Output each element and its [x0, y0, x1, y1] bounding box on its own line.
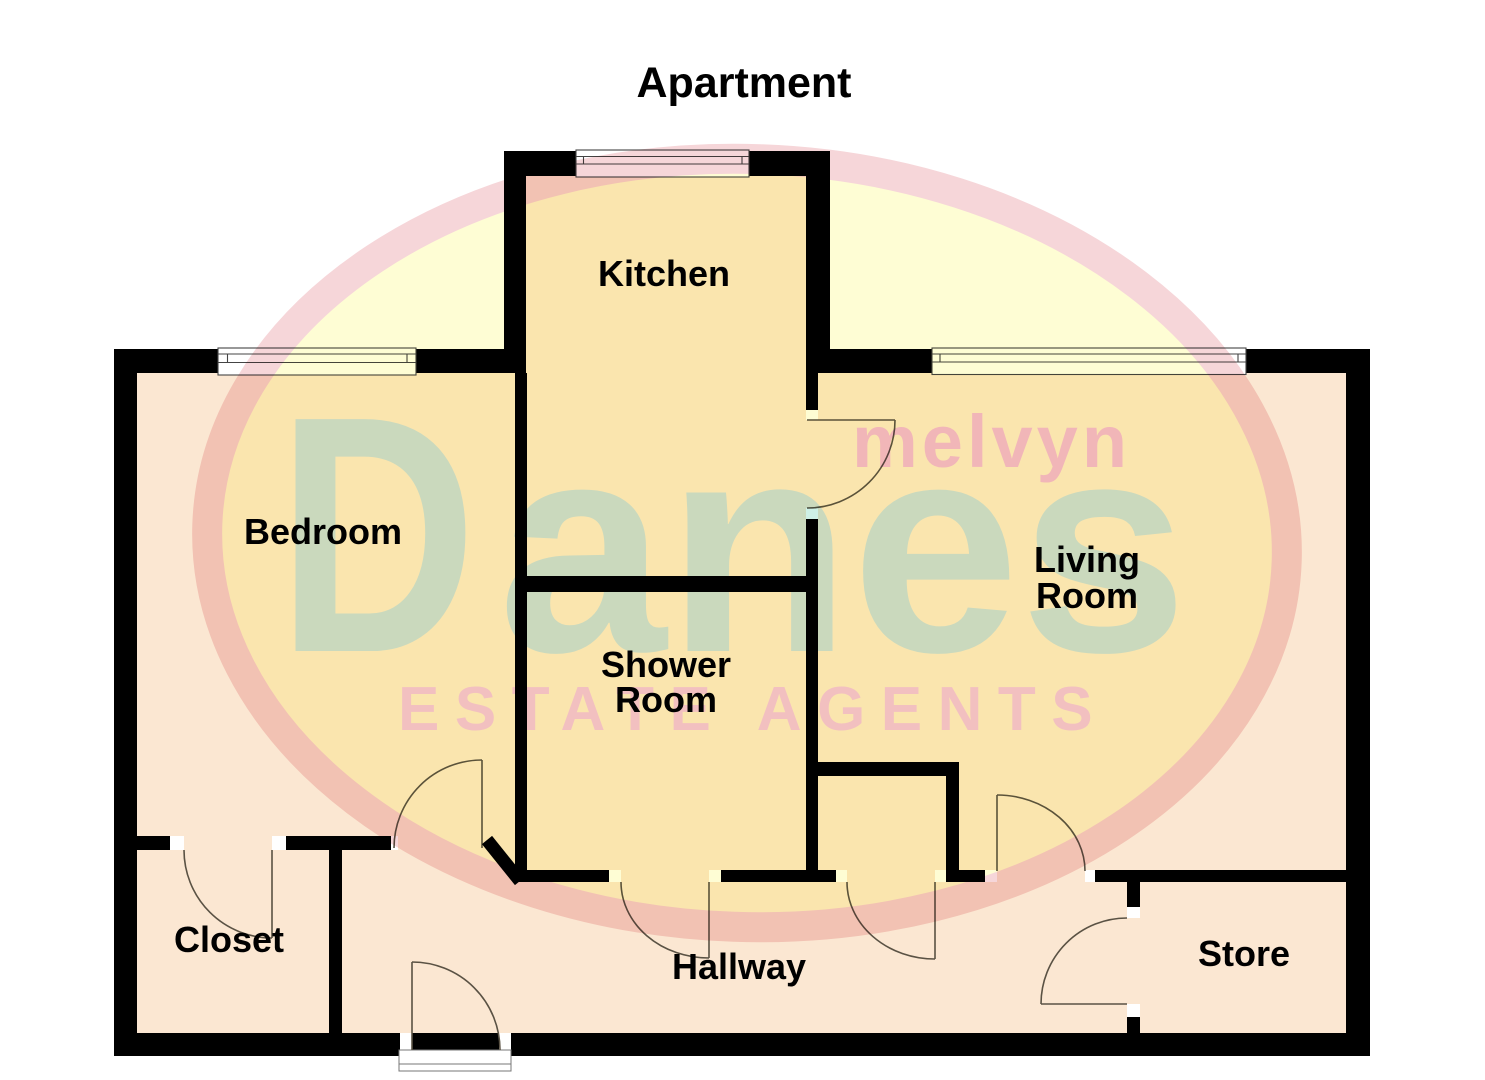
svg-text:Room: Room: [1036, 575, 1138, 616]
svg-text:Kitchen: Kitchen: [598, 253, 730, 294]
svg-text:Apartment: Apartment: [636, 59, 851, 107]
svg-text:Store: Store: [1198, 933, 1290, 974]
svg-text:Bedroom: Bedroom: [244, 511, 402, 552]
svg-text:ESTATE AGENTS: ESTATE AGENTS: [398, 675, 1108, 744]
svg-text:Living: Living: [1034, 539, 1140, 580]
svg-text:Room: Room: [615, 679, 717, 720]
svg-text:Closet: Closet: [174, 919, 284, 960]
svg-text:Hallway: Hallway: [672, 946, 806, 987]
